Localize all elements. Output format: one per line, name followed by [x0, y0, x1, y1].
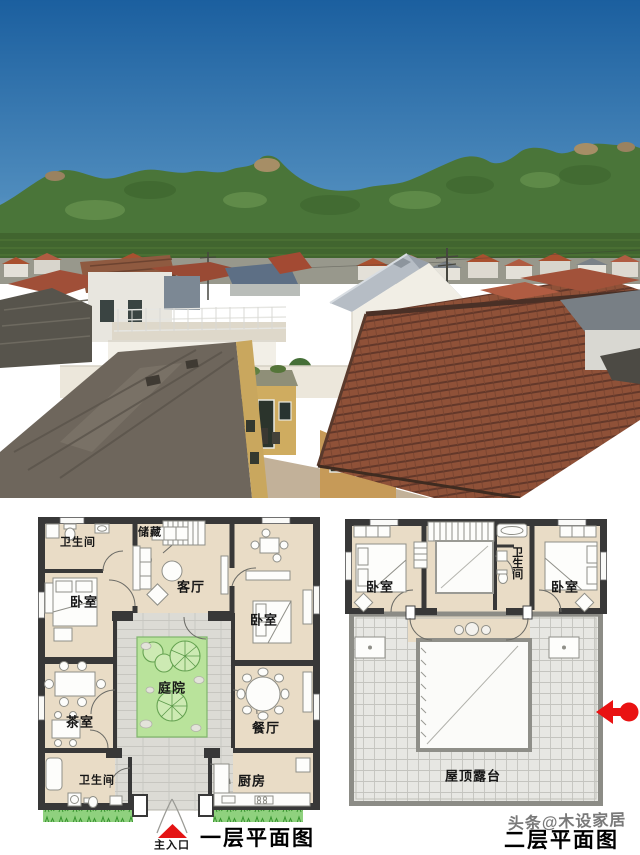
village-photo [0, 0, 640, 498]
room-label-bedroom-left: 卧室 [70, 596, 98, 609]
room-label-bedroom-right: 卧室 [250, 614, 278, 627]
room-label-tea-room: 茶室 [66, 716, 94, 729]
grass-strip [213, 810, 303, 822]
room-label-living: 客厅 [177, 581, 205, 594]
room-label-bathroom-2: 卫生间 [510, 547, 522, 580]
plan2-second-floor [345, 519, 607, 805]
plan1-title: 一层平面图 [200, 828, 315, 849]
watermark: 头条@木设家居 [507, 806, 626, 834]
room-label-storage: 储藏 [138, 528, 162, 539]
room-label-bathroom-bottom: 卫生间 [79, 776, 115, 787]
room-label-courtyard: 庭院 [158, 682, 186, 695]
main-entrance-arrow-icon [158, 824, 187, 838]
room-label-bathroom-top: 卫生间 [60, 538, 96, 549]
room-label-roof-terrace: 屋顶露台 [445, 770, 501, 783]
floor-plans [0, 498, 640, 855]
room-label-bedroom-right-2: 卧室 [551, 581, 579, 594]
grass-strip [43, 810, 133, 822]
entrance-label: 主入口 [154, 841, 190, 852]
skylight-icon [436, 541, 493, 593]
room-label-kitchen: 厨房 [238, 775, 266, 788]
courtyard-void [418, 640, 530, 750]
room-label-dining: 餐厅 [252, 722, 280, 735]
article-image: 卫生间 储藏 客厅 卧室 卧室 庭院 茶室 餐厅 卫生间 厨房 主入口 一层平面… [0, 0, 640, 855]
room-label-bedroom-left-2: 卧室 [366, 581, 394, 594]
